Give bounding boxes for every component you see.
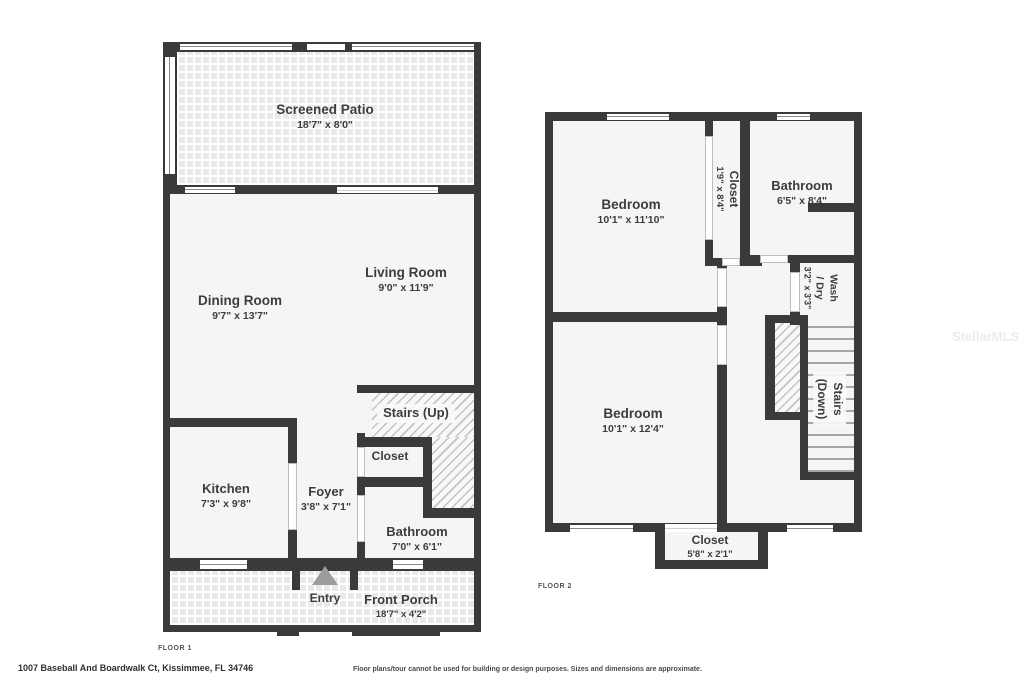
room-label-front-porch: Front Porch 18'7" x 4'2" — [331, 592, 471, 621]
wall — [545, 312, 727, 322]
dining-room-dims: 9'7" x 13'7" — [165, 310, 315, 324]
wall — [765, 315, 775, 420]
stairs-down-line2: (Down) — [814, 379, 830, 420]
entry-stub-wall — [350, 558, 358, 590]
entry-arrow-icon — [312, 566, 338, 585]
closet-bottom-name: Closet — [660, 533, 760, 549]
closet-opening — [665, 524, 717, 532]
wall — [655, 560, 768, 569]
closet-sliding-door — [705, 136, 713, 240]
wall — [800, 472, 862, 480]
living-room-name: Living Room — [331, 264, 481, 282]
floor2-label: FLOOR 2 — [538, 583, 572, 590]
closet-hall-dims: 1'9" x 8'4" — [713, 166, 725, 211]
window — [787, 525, 833, 532]
wall — [288, 530, 297, 560]
watermark: StellarMLS — [952, 329, 1019, 344]
room-label-bathroom-f2: Bathroom 6'5" x 8'4" — [726, 178, 878, 209]
window — [570, 525, 633, 532]
stairs-down-hatch — [775, 323, 800, 412]
room-label-dining-room: Dining Room 9'7" x 13'7" — [165, 292, 315, 323]
bathroom-f2-name: Bathroom — [726, 178, 878, 195]
disclaimer: Floor plans/tour cannot be used for buil… — [353, 666, 702, 673]
wall — [474, 42, 481, 194]
porch-step — [277, 628, 299, 636]
window — [200, 560, 247, 569]
room-label-bedroom-top: Bedroom 10'1" x 11'10" — [556, 196, 706, 227]
room-label-closet-bottom: Closet 5'8" x 2'1" — [660, 533, 760, 561]
entry-stub-wall — [292, 558, 300, 590]
wall — [717, 307, 727, 325]
wall — [357, 433, 365, 447]
wall — [740, 255, 862, 263]
screened-patio-dims: 18'7" x 8'0" — [225, 119, 425, 133]
wall — [790, 263, 800, 272]
bathroom-f1-name: Bathroom — [356, 524, 478, 541]
closet-f1-name: Closet — [355, 449, 425, 465]
room-label-bathroom-f1: Bathroom 7'0" x 6'1" — [356, 524, 478, 555]
floor1-label: FLOOR 1 — [158, 645, 192, 652]
bedroom-top-dims: 10'1" x 11'10" — [556, 214, 706, 228]
screen-opening — [307, 44, 345, 50]
screened-patio-name: Screened Patio — [225, 101, 425, 119]
wall — [357, 385, 481, 393]
bedroom-door — [717, 268, 727, 307]
wall — [800, 315, 808, 480]
wall — [288, 418, 297, 463]
wall — [357, 437, 432, 447]
room-label-wash-dry: Wash / Dry 3'2" x 3'3" — [801, 267, 840, 310]
room-label-bedroom-bottom: Bedroom 10'1" x 12'4" — [558, 405, 708, 436]
wall — [705, 120, 713, 136]
window — [180, 44, 292, 50]
room-label-living-room: Living Room 9'0" x 11'9" — [331, 264, 481, 295]
living-room-dims: 9'0" x 11'9" — [331, 282, 481, 296]
dining-room-name: Dining Room — [165, 292, 315, 310]
stairs-down-line1: Stairs — [830, 379, 846, 420]
porch-step — [352, 628, 440, 636]
room-label-closet-f1: Closet — [355, 449, 425, 465]
wall — [717, 365, 727, 523]
room-label-stairs-up: Stairs (Up) — [357, 403, 475, 424]
wall — [545, 112, 553, 532]
stairs-up-hatch — [432, 437, 474, 508]
bedroom-bottom-name: Bedroom — [558, 405, 708, 423]
patio-sliding-door — [337, 187, 438, 193]
closet-door — [722, 258, 740, 266]
room-label-stairs-down: Stairs (Down) — [812, 373, 846, 426]
window — [185, 187, 235, 193]
address: 1007 Baseball And Boardwalk Ct, Kissimme… — [18, 663, 253, 673]
window — [393, 560, 423, 569]
bathroom-f2-dims: 6'5" x 8'4" — [726, 195, 878, 209]
wash-dry-door — [790, 272, 800, 312]
wall — [854, 112, 862, 532]
bedroom-door — [717, 325, 727, 365]
front-porch-name: Front Porch — [331, 592, 471, 609]
wall — [170, 418, 297, 427]
wash-dry-line2: / Dry — [812, 267, 826, 310]
room-label-foyer: Foyer 3'8" x 7'1" — [266, 484, 386, 515]
wall — [423, 508, 481, 518]
bedroom-top-name: Bedroom — [556, 196, 706, 214]
stairs-up-name: Stairs (Up) — [377, 404, 455, 423]
room-label-screened-patio: Screened Patio 18'7" x 8'0" — [225, 101, 425, 132]
window — [165, 57, 175, 174]
window — [607, 114, 669, 120]
foyer-name: Foyer — [266, 484, 386, 501]
bedroom-bottom-dims: 10'1" x 12'4" — [558, 423, 708, 437]
wash-dry-line1: Wash — [826, 267, 840, 310]
bathroom-door — [760, 255, 788, 263]
window — [777, 114, 810, 120]
foyer-dims: 3'8" x 7'1" — [266, 501, 386, 515]
window — [352, 44, 474, 50]
wall — [545, 112, 862, 121]
front-porch-dims: 18'7" x 4'2" — [331, 609, 471, 621]
bathroom-f1-dims: 7'0" x 6'1" — [356, 541, 478, 555]
closet-bottom-dims: 5'8" x 2'1" — [660, 549, 760, 561]
floorplan-canvas: Screened Patio 18'7" x 8'0" Dining Room … — [0, 0, 1024, 682]
wash-dry-dims: 3'2" x 3'3" — [801, 267, 813, 310]
